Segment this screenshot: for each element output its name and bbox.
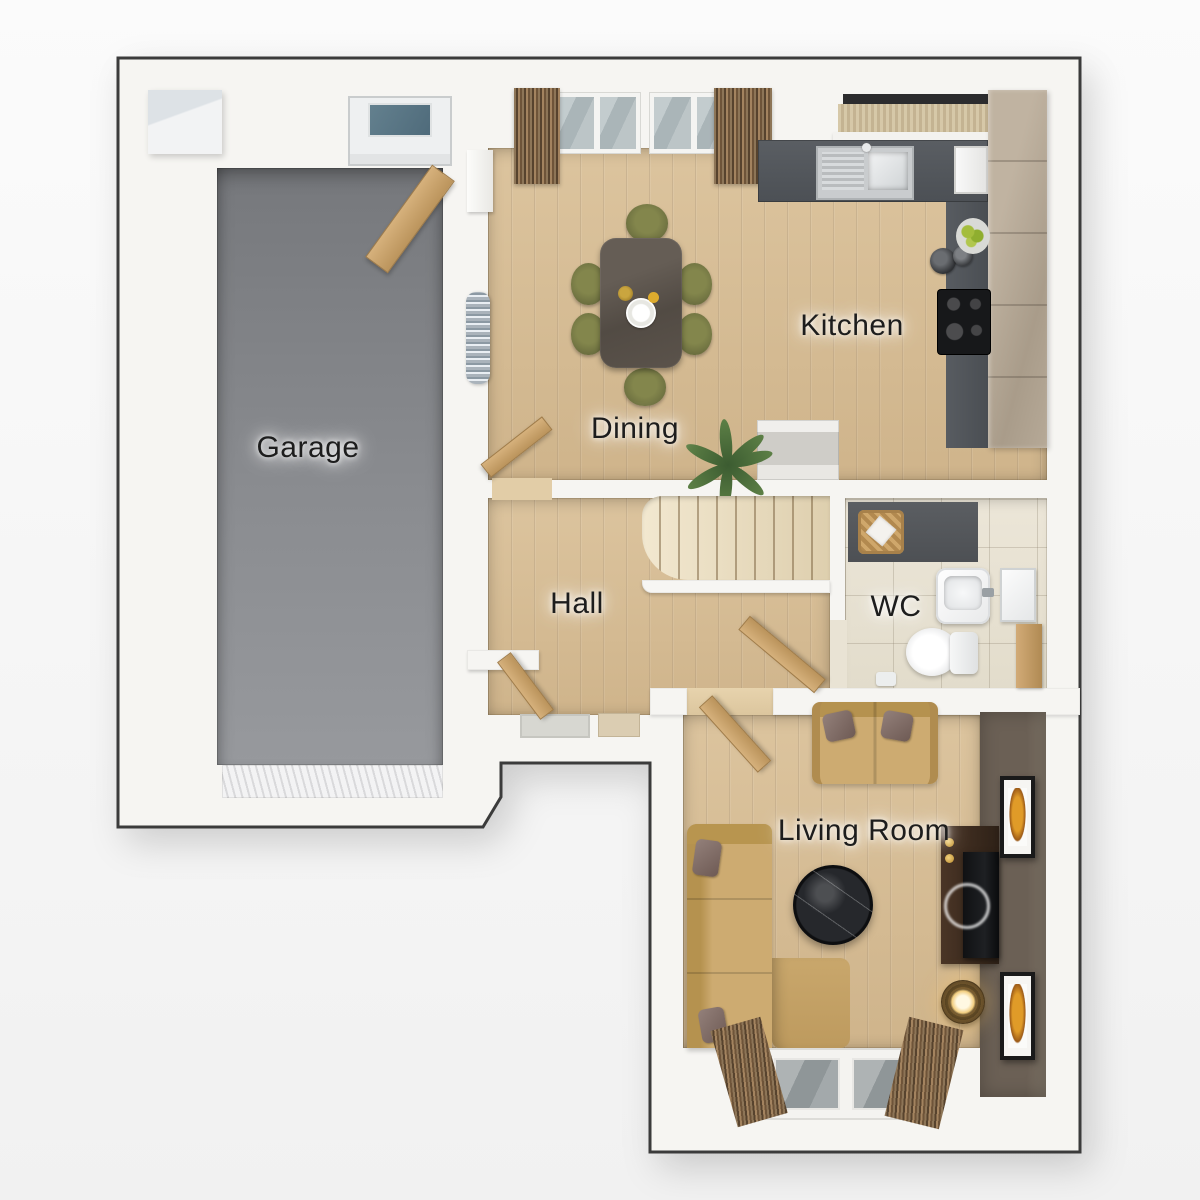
living-room-doorway-threshold [687,688,773,715]
wall-art [1000,972,1035,1060]
window-pane [558,97,594,149]
kitchen-cabinets [988,90,1047,448]
cushion [692,838,723,877]
kitchen-appliance [954,146,988,194]
radiator [466,292,490,384]
staircase [642,496,830,580]
dining-window-left [553,92,641,154]
fruit [648,292,659,303]
stair-banister [642,580,830,593]
dining-curtain-left [514,88,560,184]
garage-entry-door [348,96,452,166]
wc-floor-item [876,672,896,686]
window-pane [654,97,691,149]
garage-floor [217,168,443,765]
kitchen-hob [938,290,990,354]
wc-doorway-threshold [830,620,847,688]
coffee-table [793,865,873,945]
garage-wall-unit [148,90,222,154]
decor-knob [945,854,954,863]
kitchen-window-blind [838,104,988,132]
dining-label: Dining [591,414,679,444]
hall-label: Hall [550,589,604,619]
dining-chair [624,368,666,406]
sink-drainer [822,152,864,190]
door-threshold [598,713,640,737]
wc-mirror-cabinet [1000,568,1036,622]
sink-tap [862,143,871,152]
garage-door-glass [368,103,432,137]
doormat [520,714,590,738]
dining-doorway-threshold [492,478,552,500]
toilet-cistern [950,632,978,674]
tv-glare [944,883,990,929]
wc-sink-basin [944,576,982,610]
dining-chair [677,313,712,355]
wall-art [1000,776,1035,858]
table-lamp [950,989,976,1015]
potted-plant [690,430,766,488]
sectional-sofa-chaise [772,958,850,1048]
wc-tap [982,588,994,597]
living-room-label: Living Room [778,816,950,846]
cooking-pot [930,248,956,274]
kitchen-label: Kitchen [800,311,904,341]
tall-cupboard [467,150,493,212]
cup [618,286,633,301]
garage-door [222,765,443,798]
dining-chair [626,204,668,242]
kitchen-sink [816,146,914,200]
wc-storage-unit [1016,624,1042,688]
living-room-top-wall-left [650,688,687,715]
window-pane [600,97,636,149]
wc-label: WC [871,592,922,622]
dining-chair [677,263,712,305]
fruit-bowl [956,218,990,254]
garage-label: Garage [256,433,359,463]
kitchen-window-frame [843,94,989,104]
cushion [880,710,914,743]
floor-plan: Garage Kitchen Dining Hall WC Living Roo… [0,0,1200,1200]
sink-basin [868,152,908,190]
